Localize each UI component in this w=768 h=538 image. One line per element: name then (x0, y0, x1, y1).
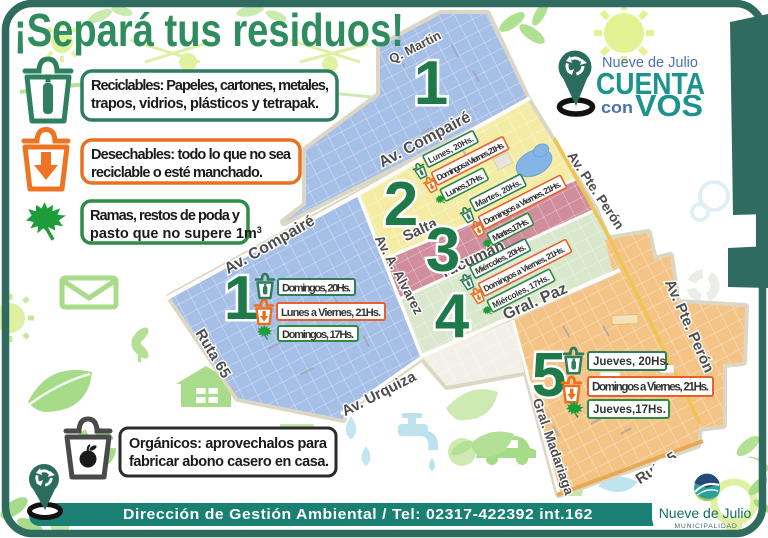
svg-text:con: con (601, 98, 633, 117)
svg-text:Domingos, 17Hs.: Domingos, 17Hs. (282, 329, 354, 341)
svg-text:¡Separá tus residuos!: ¡Separá tus residuos! (14, 4, 404, 56)
svg-text:Nueve de Julio: Nueve de Julio (659, 505, 752, 521)
svg-text:pasto que no supere 1m3: pasto que no supere 1m3 (90, 225, 262, 242)
svg-text:1: 1 (224, 264, 258, 333)
svg-text:Jueves,17Hs.: Jueves,17Hs. (593, 404, 666, 416)
svg-text:reciclable o esté manchado.: reciclable o esté manchado. (91, 165, 263, 181)
svg-text:VOS: VOS (635, 88, 703, 123)
svg-text:trapos, vidrios, plásticos y t: trapos, vidrios, plásticos y tetrapak. (91, 96, 319, 112)
svg-text:3: 3 (426, 216, 460, 285)
svg-text:Dirección de Gestión Ambiental: Dirección de Gestión Ambiental / Tel: 02… (123, 507, 593, 523)
svg-text:4: 4 (435, 282, 470, 351)
svg-text:Orgánicos: aprovechalos para: Orgánicos: aprovechalos para (129, 436, 328, 452)
svg-text:Lunes a Viernes, 21Hs.: Lunes a Viernes, 21Hs. (281, 307, 381, 319)
svg-text:5: 5 (532, 341, 566, 410)
svg-text:Desechables: todo lo que no se: Desechables: todo lo que no sea (91, 147, 292, 163)
svg-text:MUNICIPALIDAD: MUNICIPALIDAD (674, 523, 737, 530)
svg-text:2: 2 (384, 170, 418, 239)
svg-text:Ramas, restos de poda y: Ramas, restos de poda y (90, 208, 240, 224)
svg-text:Domingos a Viernes, 21Hs.: Domingos a Viernes, 21Hs. (592, 382, 709, 394)
svg-text:Reciclables: Papeles, cartones: Reciclables: Papeles, cartones, metales, (91, 78, 329, 94)
svg-text:Jueves, 20Hs.: Jueves, 20Hs. (593, 356, 669, 368)
svg-text:fabricar abono casero en casa.: fabricar abono casero en casa. (129, 454, 329, 470)
svg-text:1: 1 (414, 49, 448, 118)
svg-text:Domingos, 20Hs.: Domingos, 20Hs. (282, 283, 351, 295)
